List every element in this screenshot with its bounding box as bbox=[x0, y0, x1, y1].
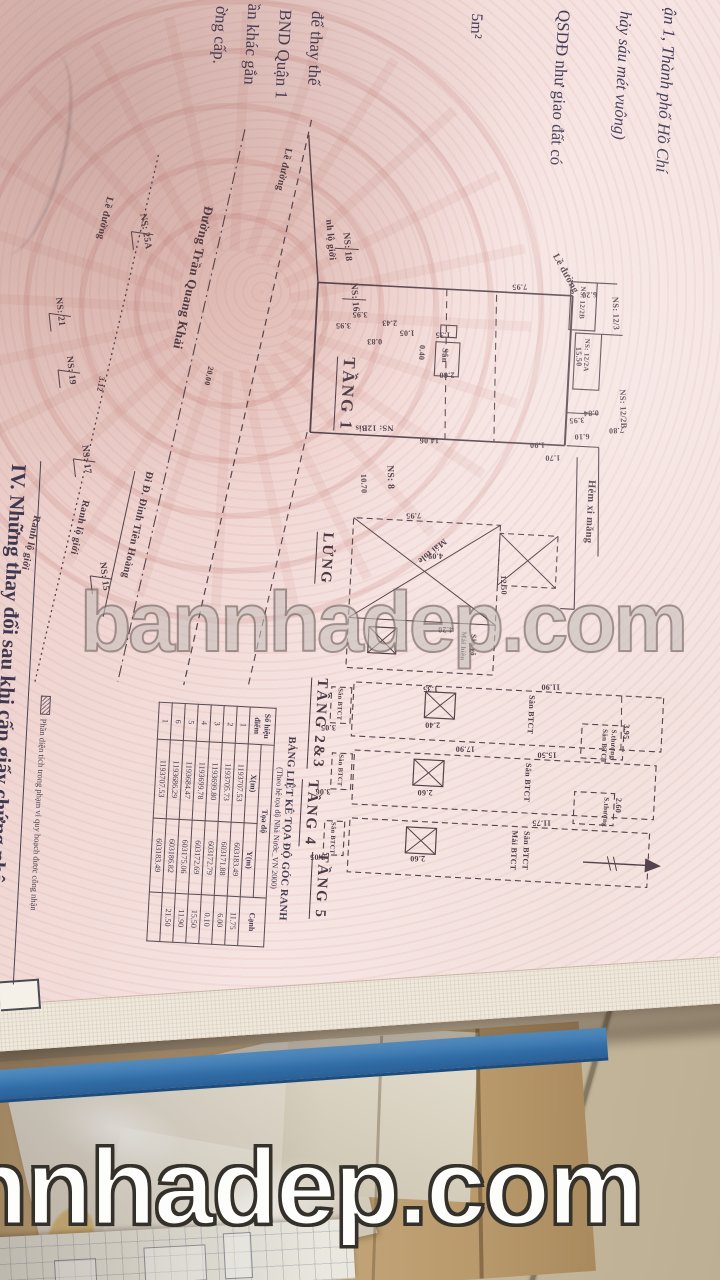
plan-line bbox=[602, 334, 623, 335]
photo-of-land-certificate: Đường Trần Quang KhảiĐi Đ. Đinh Tiên Hoà… bbox=[0, 0, 720, 1280]
plan-dimension: 2.60 bbox=[417, 788, 432, 797]
floor-plan-title: TẦNG 4 bbox=[298, 779, 320, 846]
emblem-ring bbox=[0, 38, 505, 585]
plan-dimension: 2.60 bbox=[614, 798, 624, 814]
plan-label: Mái BTCT bbox=[508, 830, 519, 871]
plan-label: S.thượng bbox=[608, 729, 618, 759]
col-header-edge: Cạnh bbox=[238, 897, 267, 947]
plan-dimension: 3.95 bbox=[621, 724, 631, 740]
coordinate-cell: 1 bbox=[235, 706, 250, 743]
coordinate-table-grid: Số hiệu điểm Tọa độ Cạnh X(m) Y(m) 11193… bbox=[146, 702, 276, 948]
plan-label: Sân BTCT bbox=[526, 695, 537, 735]
coordinate-cell: 15.50 bbox=[186, 894, 202, 943]
plan-line bbox=[583, 862, 649, 865]
plan-dimension: 2.60 bbox=[410, 854, 425, 863]
certificate-text-fragment: ờng cấp. bbox=[208, 5, 231, 64]
plan-label: Sân BTCT bbox=[522, 763, 533, 803]
plan-line bbox=[597, 283, 617, 284]
coordinate-cell: 4 bbox=[196, 704, 211, 741]
plan-label: Sân BTCT bbox=[335, 688, 344, 721]
plan-dimension: 0.40 bbox=[417, 345, 427, 361]
plan-rect bbox=[347, 818, 649, 888]
plan-line bbox=[567, 446, 599, 448]
plan-label: NS: 12Bis bbox=[355, 424, 394, 434]
plan-label: NS: 16 bbox=[348, 283, 360, 313]
certificate-text-fragment: ần khác gắn bbox=[239, 3, 263, 85]
plan-dimension: 17.90 bbox=[455, 744, 475, 753]
certificate-text-fragment: để thay thế bbox=[303, 11, 327, 87]
col-header-point: Số hiệu điểm bbox=[248, 707, 276, 745]
plan-dimension: 1.90 bbox=[530, 441, 545, 450]
plan-dimension: 7.95 bbox=[512, 282, 527, 291]
plan-dimension: 6.20 bbox=[582, 290, 598, 300]
coordinate-cell: 3 bbox=[209, 705, 224, 742]
plan-dimension: 15.50 bbox=[574, 347, 584, 367]
plan-dimension: 15.50 bbox=[537, 751, 557, 760]
coordinate-cell: 0.10 bbox=[199, 895, 215, 944]
plan-label: NS: 8 bbox=[385, 465, 396, 489]
plan-dimension: 20.00 bbox=[202, 365, 215, 386]
plan-label: Sân BTCT bbox=[336, 754, 345, 787]
coordinate-table: BẢNG LIỆT KÊ TỌA ĐỘ GÓC RANH (Theo hệ tọ… bbox=[146, 702, 298, 949]
coordinate-cell: 6.00 bbox=[212, 896, 228, 945]
plan-label: nh lộ giới bbox=[323, 219, 337, 261]
stair-xbox-diag bbox=[413, 759, 444, 787]
plan-dimension: 2.60 bbox=[439, 371, 454, 380]
plan-label: NS: 17 bbox=[79, 444, 92, 474]
plan-label: NS: 21 bbox=[53, 297, 66, 327]
plan-dimension: 2.40 bbox=[425, 720, 440, 729]
plan-label: Lề đường bbox=[550, 252, 581, 296]
plan-dimension: 7.80 bbox=[609, 426, 625, 436]
plan-label: Sân BTCT bbox=[599, 729, 609, 764]
plan-dimension: 6.10 bbox=[574, 432, 590, 442]
plan-dimension: 1.35 bbox=[435, 330, 450, 339]
plan-dimension: 11.75 bbox=[532, 818, 551, 827]
coordinate-cell: 2 bbox=[222, 706, 237, 743]
sheet-drawing-mark bbox=[54, 1258, 97, 1280]
plan-label: Sân bbox=[440, 348, 451, 363]
plan-dimension: 10.70 bbox=[359, 474, 369, 494]
plan-dimension: 7.95 bbox=[406, 511, 421, 520]
plan-label: NS: 12/2B bbox=[618, 389, 629, 429]
floor-plan-title: TẦNG 1 bbox=[333, 357, 359, 432]
plan-dimension: 14.06 bbox=[420, 436, 440, 445]
coordinate-cell: 5 bbox=[183, 704, 198, 741]
floor-plan-title: TẦNG 5 bbox=[309, 852, 331, 919]
certificate-text-fragment: 5m² bbox=[466, 13, 485, 39]
document-content-rotated: Đường Trần Quang KhảiĐi Đ. Đinh Tiên Hoà… bbox=[0, 0, 718, 1015]
plan-dimension: 1.05 bbox=[399, 329, 414, 338]
coordinate-cell: 6 bbox=[170, 703, 185, 740]
plan-label: NS: 19 bbox=[64, 356, 77, 386]
plan-line bbox=[57, 370, 61, 388]
plan-label: Sân BTCT bbox=[520, 831, 531, 871]
site-and-floor-plan-svg: Đường Trần Quang KhảiĐi Đ. Đinh Tiên Hoà… bbox=[0, 0, 718, 1015]
coordinate-cell: 21.50 bbox=[160, 893, 176, 942]
plan-line bbox=[72, 459, 76, 477]
plan-dimension: 0.84 bbox=[583, 408, 599, 418]
plan-dimension: 2.43 bbox=[382, 319, 397, 328]
plan-dimension: 1.70 bbox=[545, 453, 560, 462]
plan-label: S.thượng bbox=[601, 797, 611, 827]
sheet-drawing-mark bbox=[143, 1244, 207, 1280]
plan-dimension: 3.95 bbox=[336, 321, 351, 330]
margin-printed-box bbox=[0, 979, 41, 1012]
plan-dimension: 1.35 bbox=[423, 684, 438, 693]
watermark-bottom: nnhadep.com bbox=[0, 1124, 642, 1249]
plan-dimension: 3.95 bbox=[352, 310, 367, 319]
plan-dimension: 4.09 bbox=[428, 551, 443, 560]
plan-line bbox=[439, 289, 453, 439]
plan-dimension: 0.83 bbox=[367, 337, 382, 346]
plan-dimension: 11.90 bbox=[541, 683, 560, 692]
coordinate-cell: 1 bbox=[157, 702, 172, 739]
hatch-swatch-icon bbox=[40, 696, 51, 715]
coordinate-cell: 11.90 bbox=[173, 894, 189, 943]
plan-label: Hẻm xi măng bbox=[583, 480, 597, 544]
coordinate-cell bbox=[147, 892, 163, 941]
plan-dimension: 3.95 bbox=[569, 416, 585, 426]
plan-line bbox=[48, 313, 52, 331]
plan-label: Sân BTCT bbox=[328, 822, 337, 855]
north-arrow-head bbox=[645, 858, 662, 873]
stair-xbox-diag bbox=[424, 692, 455, 720]
coordinate-cell: 11.75 bbox=[225, 896, 241, 945]
plan-label: NS: 12/3 bbox=[611, 297, 622, 331]
watermark-center: bannhadep.com bbox=[80, 574, 685, 671]
stair-xbox-diag bbox=[405, 827, 436, 855]
